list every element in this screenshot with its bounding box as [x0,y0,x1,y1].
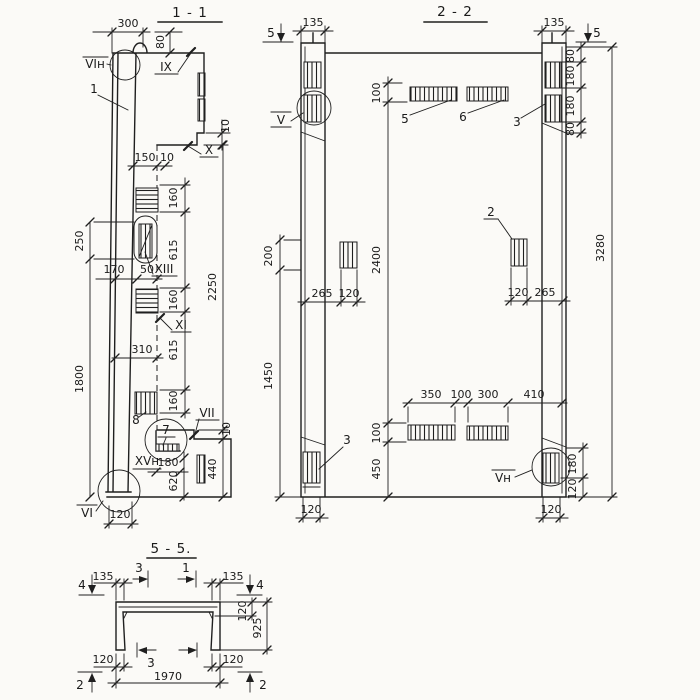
dim-10: 10 [220,422,233,436]
callout-Vn: Vн [495,471,511,485]
dim-120: 120 [93,653,114,666]
embed-plate [467,426,508,440]
dim-300: 300 [118,17,139,30]
embed-plate [303,452,320,483]
dim-100: 100 [370,423,383,444]
cut-arrow [584,33,592,42]
dim-620: 620 [167,471,180,492]
section-2-2: 2 - 2 135 135 80 180 180 80 3280 100 240… [262,4,617,522]
dim-310: 310 [132,343,153,356]
dim-120: 120 [223,653,244,666]
dim-120: 120 [541,503,562,516]
cut-mark-4: 4 [78,578,86,592]
dim-250: 250 [73,231,86,252]
embed-plate [156,444,179,451]
embed-plate [543,453,559,483]
callout-5: 5 [401,112,409,126]
dim-200: 200 [262,246,275,267]
dim-120: 120 [110,508,131,521]
dim-615: 615 [167,240,180,261]
embed-plate [198,73,205,96]
callout-3: 3 [513,115,521,129]
dim-135: 135 [544,16,565,29]
dim-150: 150 [135,151,156,164]
callout-XVn: XVн [135,454,159,468]
cut-arrow [88,585,96,594]
dim-120: 120 [301,503,322,516]
section-5-5: 5 - 5. 135 135 120 925 120 120 1970 4 4 … [76,541,272,692]
cut-arrow [139,576,148,583]
cut-mark-3: 3 [135,561,143,575]
cut-mark-2: 2 [76,678,84,692]
callout-VII: VII [199,406,214,420]
embed-plate [408,425,455,440]
callout-1: 1 [90,82,98,96]
embed-plate [304,95,321,122]
dim-160: 160 [167,290,180,311]
callout-2: 2 [487,205,495,219]
dim-925: 925 [251,618,264,639]
dim-135: 135 [303,16,324,29]
section-1-1: 1 - 1 300 80 150 10 10 160 615 160 615 1… [73,5,233,528]
dim-2250: 2250 [206,273,219,301]
dim-180: 180 [564,66,577,87]
embed-plate [136,289,158,313]
embed-plate [545,95,561,122]
callout-VIn: VIн [85,57,105,71]
dim-440: 440 [206,459,219,480]
dim-180: 180 [566,454,579,475]
dim-10: 10 [219,119,232,133]
cut-arrow [138,647,147,654]
embed-plate [198,99,205,121]
cut-mark-5: 5 [267,26,275,40]
embed-plate [410,87,457,101]
section-title: 1 - 1 [172,5,208,21]
dim-135: 135 [93,570,114,583]
dim-1800: 1800 [73,365,86,393]
callout-V: V [277,113,286,127]
callout-IX: IX [160,60,172,74]
dim-80: 80 [564,122,577,136]
callout-X: X [205,143,213,157]
cut-arrow [277,33,285,42]
dim-180: 180 [564,96,577,117]
embed-plate [136,188,158,212]
channel-outline [116,602,220,650]
callout-6: 6 [459,110,467,124]
dim-120: 120 [566,479,579,500]
embed-plate [545,62,561,88]
dim-265: 265 [535,286,556,299]
callout-XIII: XIII [155,262,174,276]
section-title: 5 - 5. [151,541,192,557]
embed-plate [340,242,357,268]
callout-8: 8 [132,413,140,427]
dim-265: 265 [312,287,333,300]
dim-100: 100 [370,83,383,104]
dim-120: 120 [339,287,360,300]
cut-arrow [188,647,197,654]
dim-160: 160 [167,391,180,412]
cut-mark-1: 1 [182,561,190,575]
section-title: 2 - 2 [437,4,473,20]
dim-300: 300 [478,388,499,401]
dim-170: 170 [104,263,125,276]
detail-circle-VI [98,470,140,512]
dim-160: 160 [167,188,180,209]
cut-mark-2: 2 [259,678,267,692]
dim-3280: 3280 [594,234,607,262]
dim-2400: 2400 [370,246,383,274]
drawing-canvas: 1 - 1 300 80 150 10 10 160 615 160 615 1… [0,0,700,700]
cut-mark-4: 4 [256,578,264,592]
leader-lines [77,53,219,511]
dim-1450: 1450 [262,362,275,390]
dim-180: 180 [158,456,179,469]
cut-arrow [246,585,254,594]
dim-120: 120 [236,601,249,622]
embed-plate [135,392,157,414]
dim-120: 120 [508,286,529,299]
drawing-sheet: 1 - 1 300 80 150 10 10 160 615 160 615 1… [0,0,700,700]
callout-7: 7 [162,423,170,437]
callout-XI: XI [175,318,187,332]
dim-10: 10 [160,151,174,164]
cut-mark-5: 5 [593,26,601,40]
dim-410: 410 [524,388,545,401]
dim-80: 80 [154,35,167,49]
cut-arrow [246,673,254,682]
callout-3: 3 [343,433,351,447]
embed-plate [467,87,508,101]
cut-arrow [88,673,96,682]
callout-VI: VI [81,506,93,520]
dim-1970: 1970 [154,670,182,683]
cut-mark-3: 3 [147,656,155,670]
embed-plate [511,239,527,266]
dim-50: 50 [140,263,154,276]
dim-80: 80 [564,49,577,63]
cut-arrow [186,576,195,583]
dim-135: 135 [223,570,244,583]
embed-plate [197,455,205,483]
dim-615: 615 [167,340,180,361]
dim-350: 350 [421,388,442,401]
dim-450: 450 [370,459,383,480]
dim-100: 100 [451,388,472,401]
embed-plate [304,62,321,88]
